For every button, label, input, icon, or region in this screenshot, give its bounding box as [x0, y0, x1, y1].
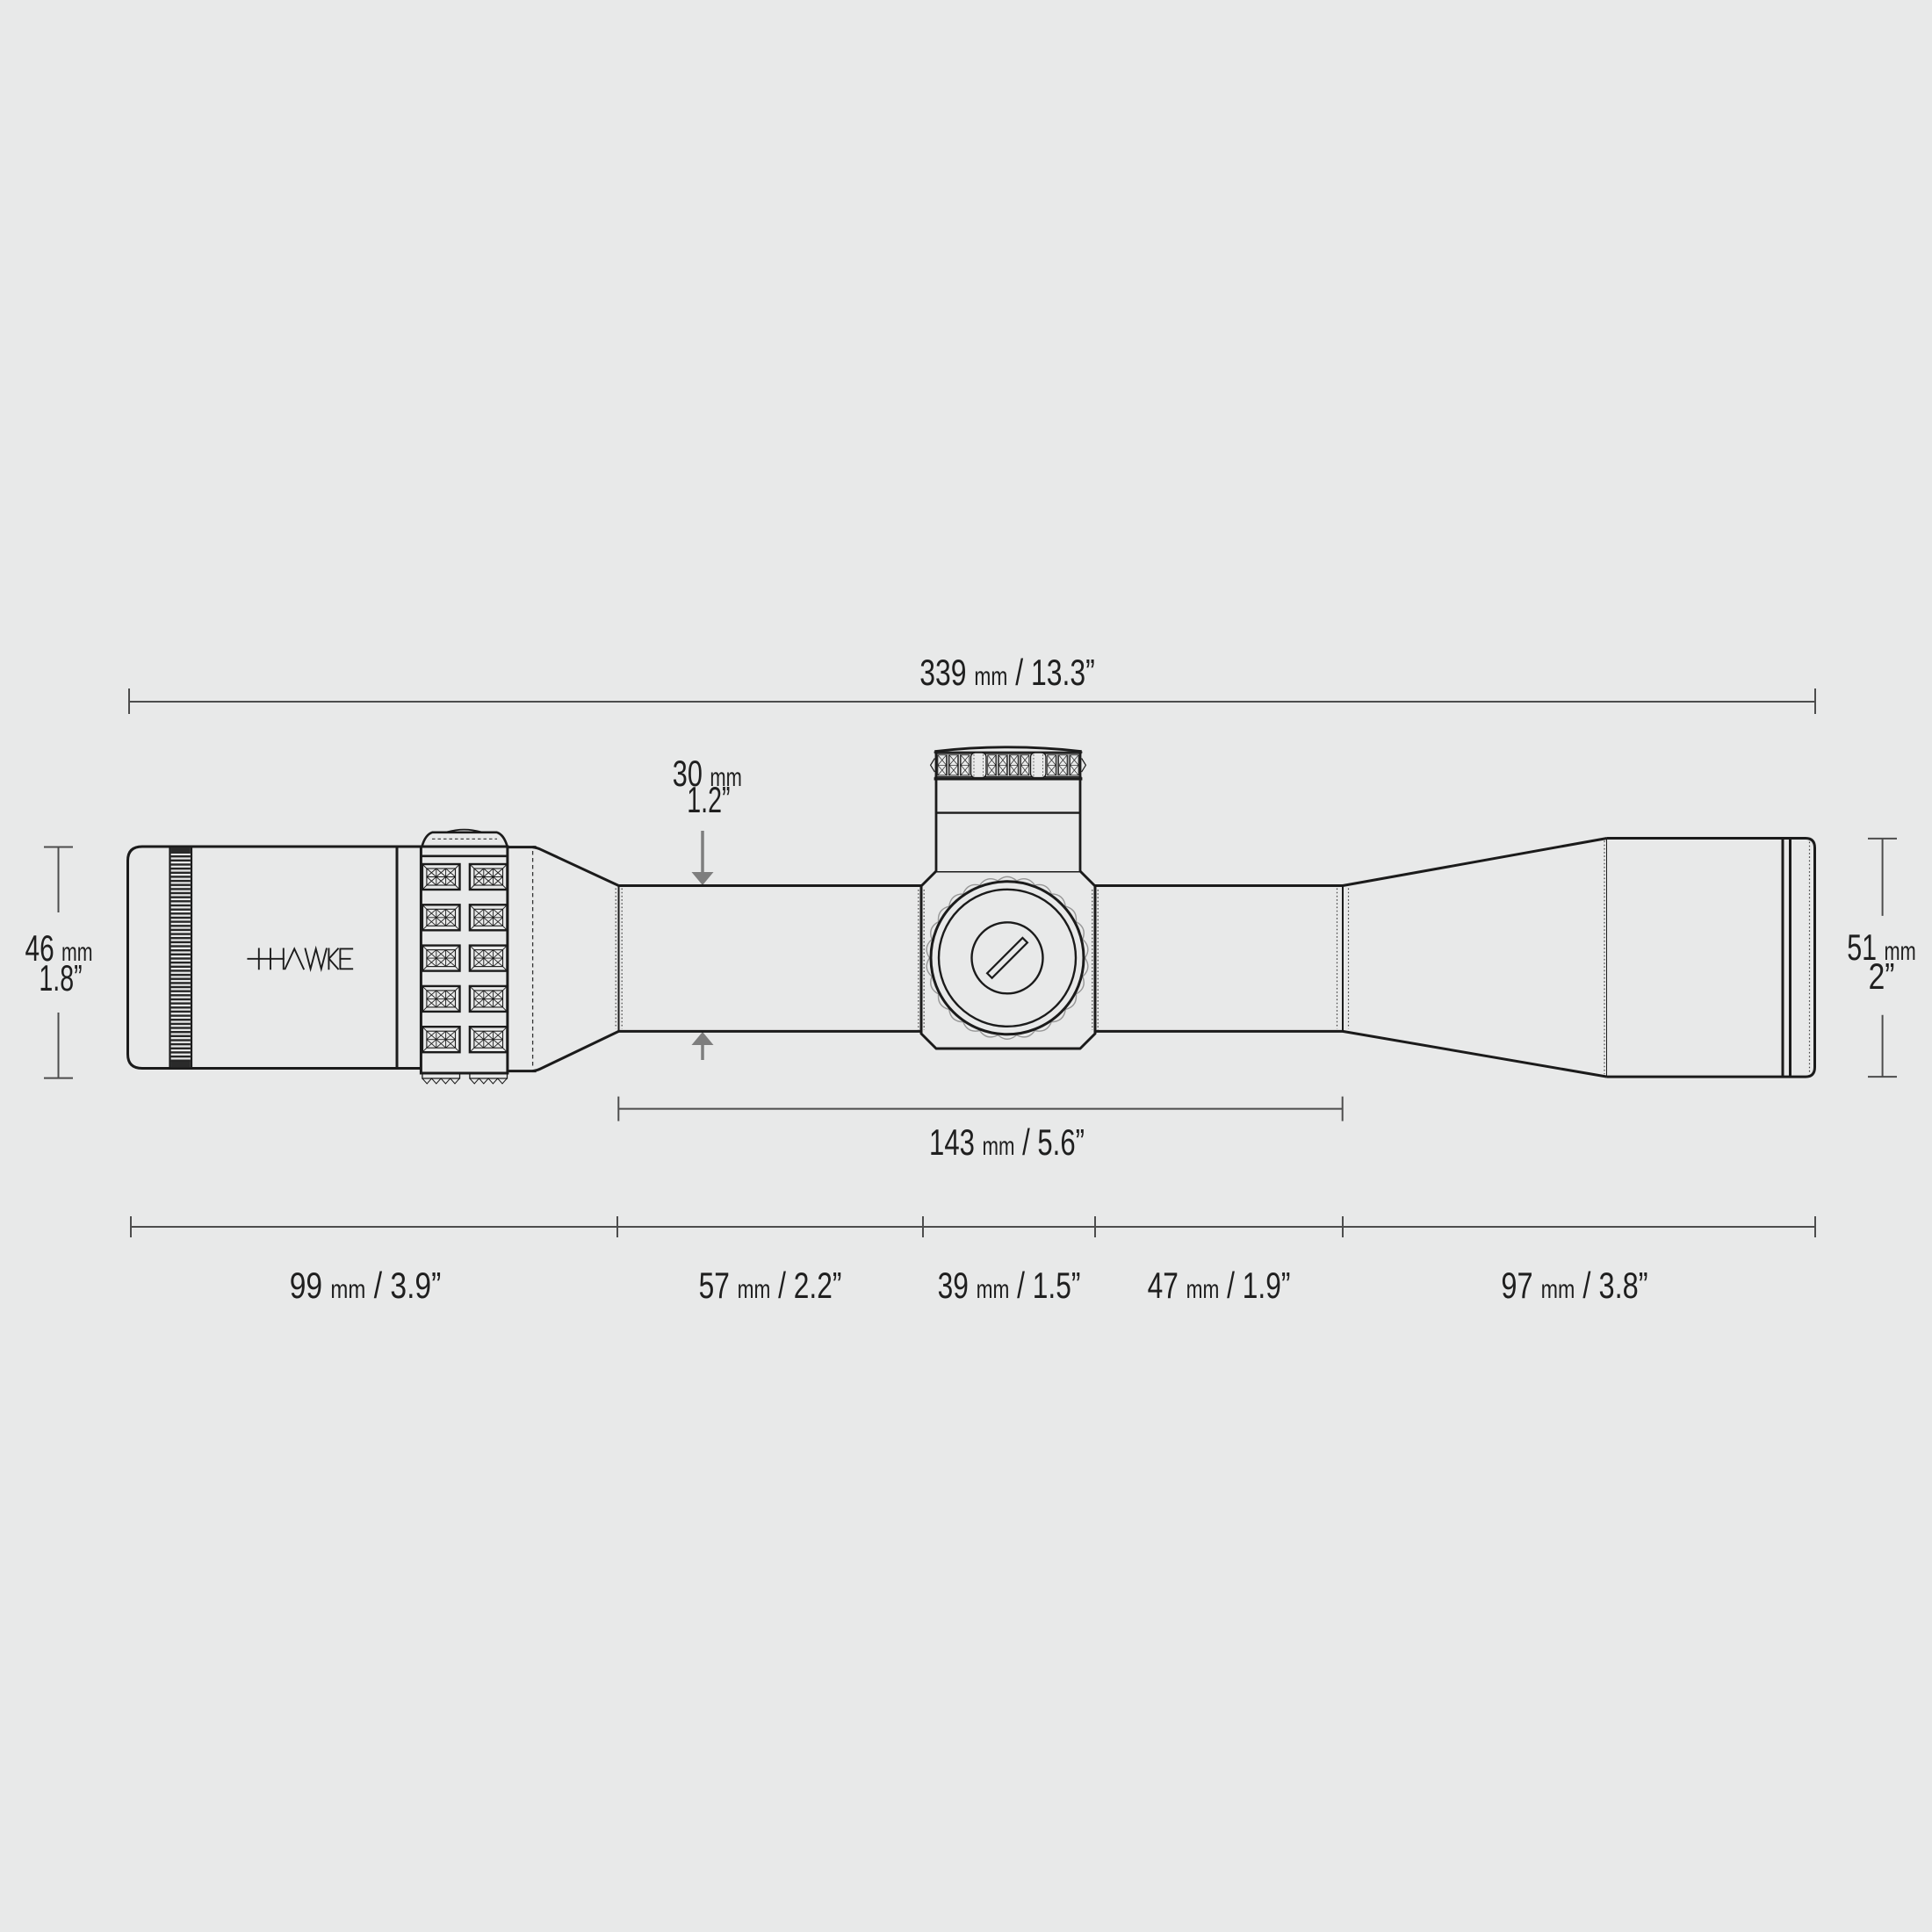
svg-text:47 mm / 1.9”: 47 mm / 1.9” [1148, 1265, 1291, 1306]
svg-text:39 mm / 1.5”: 39 mm / 1.5” [938, 1265, 1081, 1306]
svg-text:97 mm / 3.8”: 97 mm / 3.8” [1501, 1265, 1647, 1306]
svg-text:339 mm / 13.3”: 339 mm / 13.3” [919, 652, 1094, 693]
svg-text:99 mm / 3.9”: 99 mm / 3.9” [290, 1266, 442, 1307]
svg-text:1.8”: 1.8” [39, 956, 82, 998]
svg-text:1.2”: 1.2” [687, 778, 730, 820]
svg-text:57 mm / 2.2”: 57 mm / 2.2” [699, 1265, 842, 1306]
svg-text:2”: 2” [1869, 957, 1895, 998]
